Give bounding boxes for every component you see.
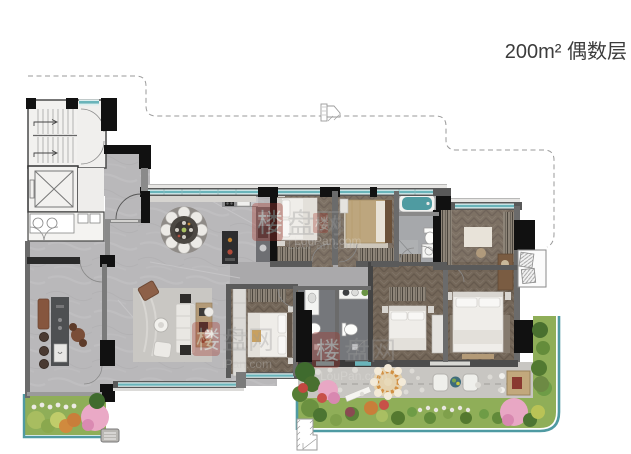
svg-text:楼: 楼: [196, 327, 220, 354]
svg-text:盘网: 盘网: [344, 336, 396, 366]
svg-text:楼: 楼: [257, 208, 283, 238]
svg-text:LouPan.com: LouPan.com: [288, 238, 355, 252]
svg-text:LouPan.com: LouPan.com: [320, 369, 387, 383]
svg-text:200m² 偶数层: 200m² 偶数层: [505, 40, 627, 63]
svg-text:楼: 楼: [316, 338, 340, 365]
svg-text:盘网: 盘网: [287, 208, 343, 239]
svg-text:盘网: 盘网: [222, 325, 274, 355]
svg-text:iPan.com: iPan.com: [222, 357, 272, 371]
